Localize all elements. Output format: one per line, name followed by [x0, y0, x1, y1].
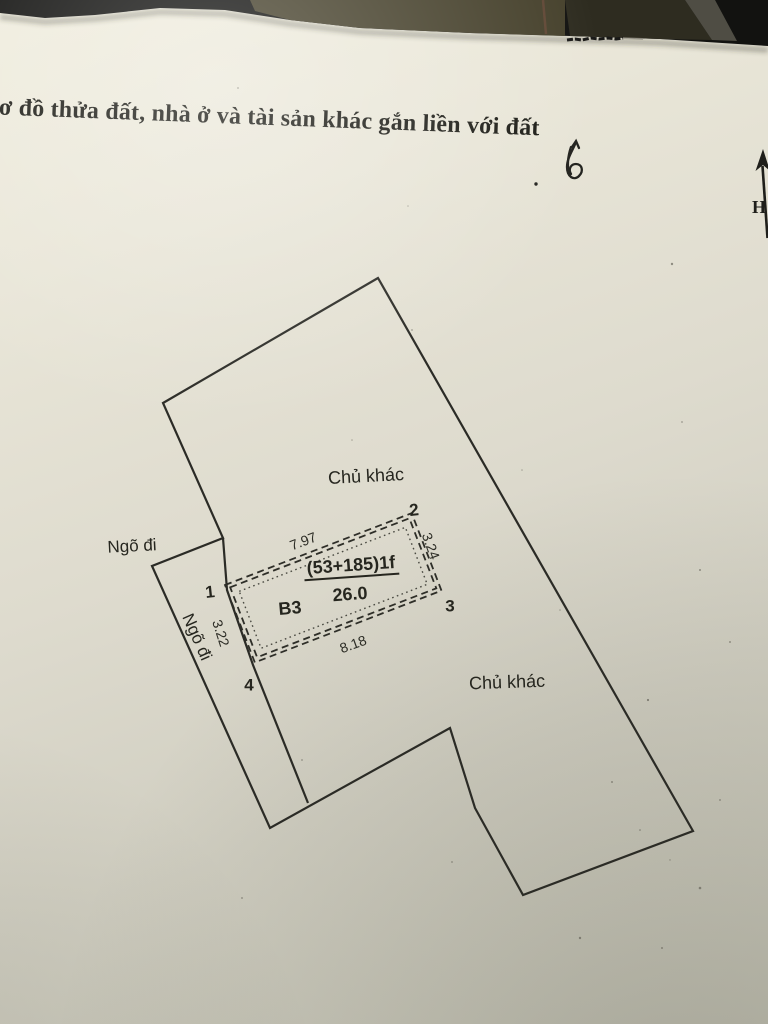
- corner-2-label: 2: [408, 501, 419, 519]
- neighbor-top-label: Chủ khác: [328, 465, 405, 487]
- parcel-block-label: B3: [278, 598, 302, 618]
- alley-label-outer: Ngõ đi: [107, 536, 157, 556]
- parcel-area-label: 26.0: [332, 584, 368, 604]
- corner-1-label: 1: [204, 583, 215, 601]
- neighbor-bottom-label: Chủ khác: [469, 672, 546, 693]
- document-photo: Sơ đồ thửa đất, nhà ở và tài sản khác gắ…: [0, 0, 768, 1024]
- plot-boundary-svg: [0, 0, 768, 1024]
- alley-east-boundary: [223, 538, 308, 803]
- corner-3-label: 3: [445, 598, 454, 615]
- paper-specks: [237, 87, 731, 949]
- corner-4-label: 4: [244, 677, 253, 694]
